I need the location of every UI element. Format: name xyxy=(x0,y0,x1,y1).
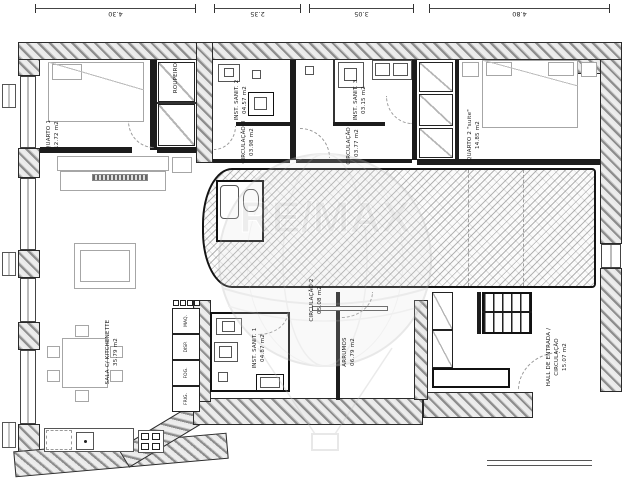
room-label-roupeiro: ROUPEIRO xyxy=(168,43,184,113)
wall-left-corner-top xyxy=(18,59,40,76)
door-arc-arrumos xyxy=(341,292,373,318)
wardrobe-cell-1 xyxy=(419,62,453,92)
window-right xyxy=(601,244,621,268)
room-label-quarto1: QUARTO 112.72 m2 xyxy=(43,100,63,170)
room-label-circulacao-4: CIRCULAÇÃO 403.77 m2 xyxy=(343,108,363,178)
appliance-label: FOG. xyxy=(174,360,198,386)
wall-left-pier-1 xyxy=(18,148,40,178)
dimension-segment-4: 4.80 xyxy=(429,6,610,20)
window-left-3 xyxy=(20,278,36,322)
appliance-washer: MAQ. xyxy=(172,308,200,334)
staircase-icon xyxy=(482,292,532,334)
drain-icon xyxy=(218,372,228,382)
wall-right-lower xyxy=(600,268,622,392)
room-label-circulacao-2: CIRCULAÇÃO 205.08 m2 xyxy=(306,265,326,335)
wall-left-pier-2 xyxy=(18,250,40,278)
room-label-hall: HALL DE ENTRADA /CIRCULAÇÃO15.07 m2 xyxy=(543,319,571,395)
chair-icon xyxy=(47,346,60,358)
hob-burner xyxy=(141,443,149,450)
room-label-quarto2: QUARTO 2 "suite"14.85 m2 xyxy=(464,100,484,170)
drainer-icon xyxy=(46,430,72,450)
sofa-back xyxy=(57,156,169,171)
room-label-arrumos: ARRUMOS06.79 m2 xyxy=(339,317,359,387)
door-arc-circ4 xyxy=(300,128,330,158)
bathtub-icon xyxy=(220,185,239,219)
appliance-label: MAQ. xyxy=(174,308,198,334)
window-sill-1 xyxy=(2,84,16,108)
sink-drain-dot xyxy=(84,440,87,443)
wall-top xyxy=(18,42,622,60)
dimension-segment-2: 2.35 xyxy=(214,6,301,20)
room-label-sala: SALA C/ KITCHENETTE35.79 m2 xyxy=(102,317,122,387)
hall-bench xyxy=(432,368,510,388)
sink-bowl-2 xyxy=(393,63,408,76)
window-left-1 xyxy=(20,76,36,148)
wall-right-upper xyxy=(600,59,622,244)
sideboard-inner xyxy=(80,250,130,282)
wall-sanit2-right xyxy=(290,60,296,160)
wall-sanit3-right xyxy=(412,60,417,160)
wall-bottom-middle xyxy=(193,398,423,425)
pier-roupeiro-sanit2 xyxy=(196,42,213,163)
hall-closet-1 xyxy=(432,292,453,330)
dimension-segment-1: 4.30 xyxy=(35,6,196,20)
window-left-2 xyxy=(20,178,36,250)
sanit3-divider xyxy=(333,60,335,122)
appliance-stove: FOG. xyxy=(172,360,200,386)
nightstand-icon xyxy=(462,62,479,77)
hob-burner xyxy=(152,443,160,450)
wall-bottom-hall xyxy=(423,392,533,418)
chair-icon xyxy=(47,370,60,382)
appliance-dot xyxy=(187,300,193,306)
bed-fold-line xyxy=(482,60,578,86)
wall-left-pier-3 xyxy=(18,322,40,350)
washbasin-bowl xyxy=(219,346,232,358)
bed-fold-line xyxy=(48,62,144,90)
appliance-label: DISP. xyxy=(174,334,198,360)
room-label-inst-sanit-1: INST. SANIT. 104.87 m2 xyxy=(249,313,269,383)
washbasin-bowl xyxy=(222,321,235,332)
appliance-fridge: FRIG. xyxy=(172,386,200,412)
dimension-label: 4.80 xyxy=(429,10,610,18)
dimension-label: 3.05 xyxy=(309,10,414,18)
side-table-icon xyxy=(172,157,192,173)
window-sill-3 xyxy=(2,422,16,448)
appliance-pantry: DISP. xyxy=(172,334,200,360)
toilet-icon xyxy=(243,189,259,212)
door-arc-sanit3 xyxy=(386,96,412,124)
core-dashed-line-2 xyxy=(523,170,524,286)
hall-closet-2 xyxy=(432,330,453,368)
rug-icon xyxy=(92,174,148,181)
core-dashed-line-1 xyxy=(468,170,469,286)
wardrobe-cell-2 xyxy=(419,94,453,126)
drain-icon xyxy=(305,66,314,75)
wall-wardrobe-right xyxy=(455,60,459,160)
drain-icon xyxy=(252,70,261,79)
dimension-segment-3: 3.05 xyxy=(309,6,414,20)
wall-stairs-left xyxy=(477,292,481,334)
wall-quarto2-bottom xyxy=(417,159,600,165)
door-arc-quarto1 xyxy=(128,121,154,148)
chair-icon xyxy=(75,390,89,402)
chair-icon xyxy=(75,325,89,337)
dimension-label: 4.30 xyxy=(35,10,196,18)
stair-rail xyxy=(482,311,532,313)
dimension-label: 2.35 xyxy=(214,10,301,18)
sink-bowl-1 xyxy=(375,63,390,76)
wall-roupeiro-bottom xyxy=(157,147,196,153)
entry-step-lines xyxy=(487,460,592,466)
hob-burner xyxy=(141,433,149,440)
pier-arrumos-hall xyxy=(414,300,428,400)
wardrobe-cell-3 xyxy=(419,128,453,158)
balloon-basket xyxy=(312,434,338,450)
room-label-circulacao-3: CIRCULAÇÃO 303.98 m2 xyxy=(238,107,258,177)
hob-burner xyxy=(152,433,160,440)
appliance-label: FRIG. xyxy=(174,386,198,412)
appliance-dot xyxy=(194,300,200,306)
appliance-dot xyxy=(173,300,179,306)
appliance-dot xyxy=(180,300,186,306)
window-sill-2 xyxy=(2,252,16,276)
window-left-4 xyxy=(20,350,36,424)
nightstand-icon xyxy=(581,62,597,77)
floor-plan: 4.30 2.35 3.05 4.80 xyxy=(0,0,640,480)
